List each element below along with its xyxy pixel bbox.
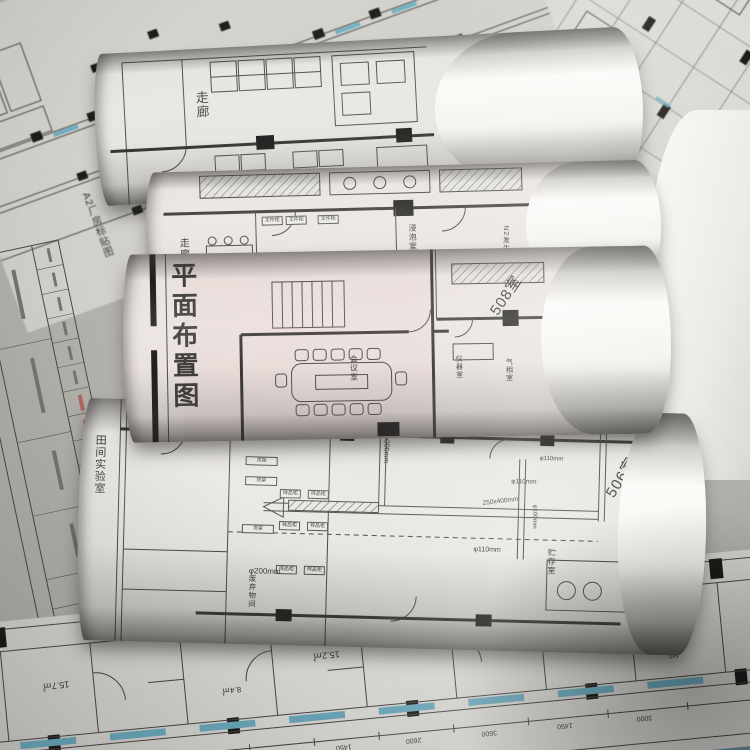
- sample-cabinet-label: 样品柜: [280, 489, 301, 499]
- pipe-size-label: φ110mm: [540, 456, 564, 463]
- pipe-size-label: φ110mm: [511, 479, 537, 486]
- file-cabinet-label: 文件柜: [262, 216, 283, 226]
- meeting-room-label: 会议室: [349, 355, 357, 382]
- dimension-label: 1450: [557, 721, 573, 729]
- room-area-label: 15.2㎡: [313, 649, 340, 661]
- waste-room-label: 废弃物间: [248, 574, 256, 608]
- pipe-size-label: φ100mm: [531, 505, 538, 529]
- pipe-size-label: φ110mm: [473, 546, 501, 554]
- file-cabinet-label: 文件柜: [286, 216, 307, 226]
- roll4-paper-back: [615, 412, 709, 656]
- shelf-label: 货架: [246, 456, 278, 466]
- storage-room-label: 贮存室: [547, 548, 556, 575]
- dimension-label: 3600: [481, 728, 497, 736]
- pipe-size-label: φ200mm: [249, 567, 281, 576]
- blueprint-roll-3: 平面布置图 会议室 508室 仪器室 气相室: [121, 245, 672, 443]
- sample-cabinet-label: 样品柜: [304, 566, 325, 576]
- soak-room-label: 浸泡室: [408, 224, 417, 251]
- sample-cabinet-label: 样品柜: [279, 521, 300, 531]
- shelf-label: 货架: [245, 476, 277, 486]
- room-area-label: 15.7㎡: [42, 679, 69, 691]
- sample-cabinet-label: 样品柜: [307, 522, 328, 532]
- shelf-label: 货架: [242, 524, 274, 534]
- dimension-label: 3000: [636, 714, 652, 722]
- corridor-label: 走廊: [194, 90, 208, 119]
- dimension-label: 1450: [336, 742, 352, 750]
- gas-room-label: 气相室: [505, 358, 512, 382]
- pipe-size-label: φ200mm: [382, 435, 390, 463]
- file-cabinet-label: 文件柜: [318, 215, 339, 225]
- roll3-paper-back: [539, 245, 672, 435]
- blueprint-photo: A2厂房标贴图: [0, 0, 750, 750]
- field-lab-label: 田间实验室: [93, 434, 106, 494]
- room-area-label: 8.4㎡: [222, 685, 242, 695]
- dimension-label: 2600: [405, 736, 421, 744]
- plan-title-label: 平面布置图: [170, 262, 199, 412]
- sample-cabinet-label: 样品柜: [308, 490, 329, 500]
- instrument-room-label: 仪器室: [455, 355, 462, 379]
